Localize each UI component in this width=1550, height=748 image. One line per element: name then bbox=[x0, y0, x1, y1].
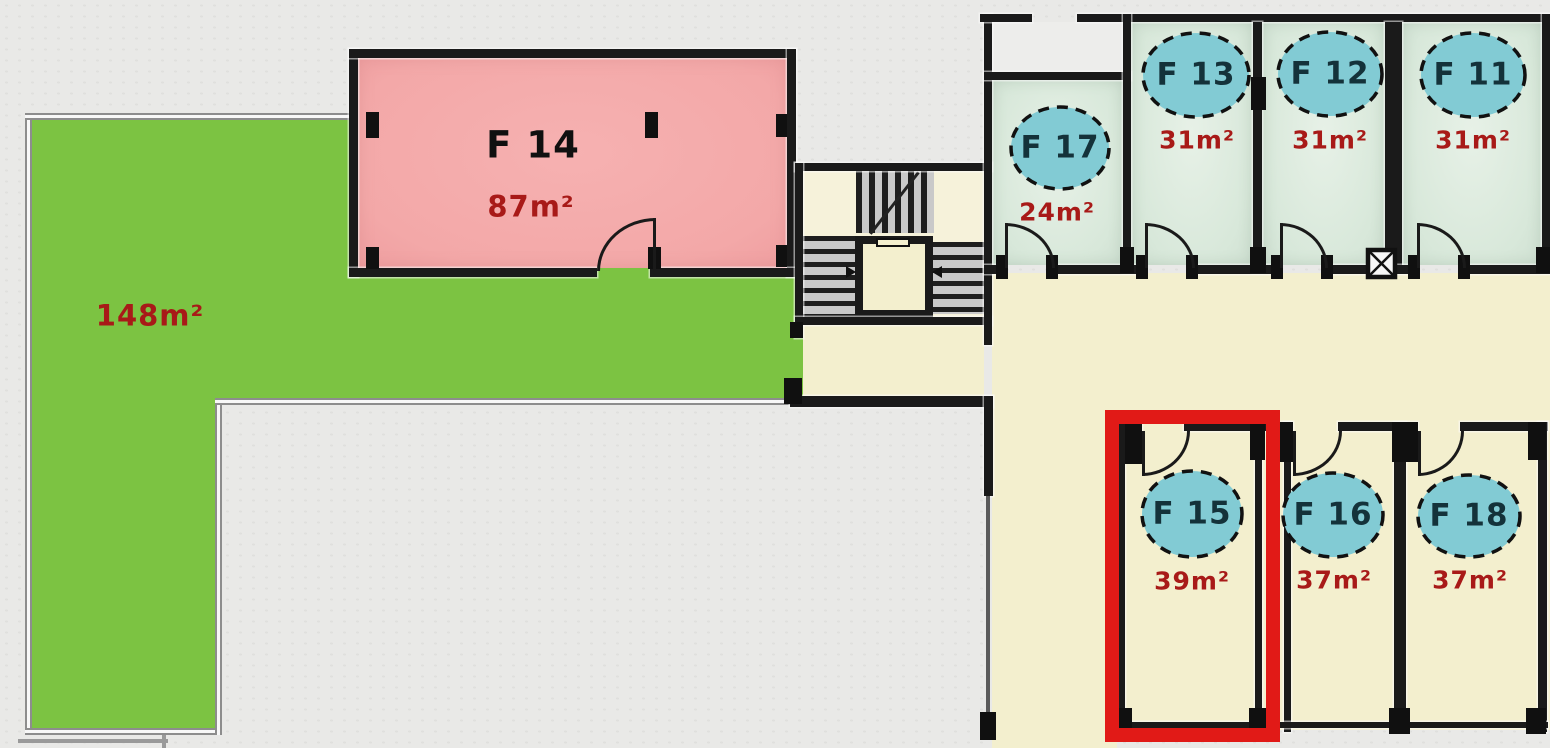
wall-post bbox=[1250, 247, 1266, 273]
wall-post bbox=[980, 712, 996, 740]
wall bbox=[795, 163, 803, 338]
wall bbox=[1538, 422, 1547, 732]
wall-post bbox=[776, 114, 787, 137]
wall-post bbox=[645, 112, 658, 138]
unit-f17-area: 24m² bbox=[1019, 200, 1095, 225]
terrace-border-inner-vertical bbox=[215, 398, 222, 735]
wall-post bbox=[776, 245, 787, 267]
elevator-door-marker bbox=[876, 238, 910, 247]
unit-f17-label: F 17 bbox=[1020, 133, 1099, 164]
wall-post bbox=[366, 247, 379, 269]
corridor-left-band bbox=[803, 325, 984, 396]
vestibule bbox=[992, 22, 1123, 72]
wall bbox=[984, 72, 1131, 80]
stairs-right-flight bbox=[933, 242, 984, 314]
wall-post bbox=[366, 112, 379, 138]
unit-f13-label: F 13 bbox=[1156, 60, 1235, 91]
terrace-border-top bbox=[25, 113, 355, 120]
wall bbox=[1323, 265, 1417, 274]
terrace-foot-line bbox=[18, 739, 168, 743]
unit-f12-label: F 12 bbox=[1290, 59, 1369, 90]
wall bbox=[790, 396, 993, 407]
corridor-column bbox=[992, 273, 1117, 748]
wall-post bbox=[784, 378, 802, 404]
unit-f15-area: 39m² bbox=[1154, 569, 1230, 594]
wall bbox=[1123, 14, 1131, 273]
wall-post bbox=[1120, 247, 1134, 273]
unit-f11-label: F 11 bbox=[1433, 60, 1512, 91]
unit-f14-area: 87m² bbox=[487, 193, 574, 222]
unit-f15-label: F 15 bbox=[1152, 499, 1231, 530]
terrace-border-inner-horizontal bbox=[215, 398, 795, 405]
unit-f16-area: 37m² bbox=[1296, 568, 1372, 593]
unit-f13-area: 31m² bbox=[1159, 128, 1235, 153]
wall bbox=[349, 49, 796, 58]
wall bbox=[984, 14, 992, 345]
wall bbox=[984, 396, 993, 496]
stairs-left-flight bbox=[803, 236, 856, 317]
wall bbox=[349, 49, 358, 277]
wall bbox=[1077, 14, 1550, 22]
unit-f11-area: 31m² bbox=[1435, 128, 1511, 153]
wall bbox=[795, 163, 992, 171]
wall bbox=[795, 317, 992, 325]
wall bbox=[650, 268, 796, 277]
terrace-area-strip[interactable] bbox=[30, 398, 215, 728]
unit-f16-label: F 16 bbox=[1293, 500, 1372, 531]
terrace-border-strip-bottom bbox=[25, 728, 222, 735]
wall bbox=[1190, 265, 1280, 274]
unit-f18-area: 37m² bbox=[1432, 568, 1508, 593]
wall bbox=[1284, 422, 1291, 732]
wall bbox=[1385, 22, 1402, 273]
wall bbox=[1394, 422, 1406, 732]
wall bbox=[349, 268, 597, 277]
unit-f14-label: F 14 bbox=[486, 127, 580, 164]
terrace-area-label: 148m² bbox=[96, 302, 204, 331]
wall bbox=[980, 14, 1032, 22]
wall-post bbox=[1251, 77, 1266, 110]
terrace-border-left bbox=[25, 113, 32, 735]
terrace-foot-line-vertical bbox=[162, 735, 166, 748]
floor-plan-canvas: F 14 87m² 148m² F 17 24m² F 13 31m² F 12… bbox=[0, 0, 1550, 748]
unit-f18-label: F 18 bbox=[1429, 501, 1508, 532]
unit-f12-area: 31m² bbox=[1292, 128, 1368, 153]
wall-post bbox=[790, 322, 803, 338]
wall bbox=[1542, 14, 1550, 273]
wall-post bbox=[1536, 247, 1550, 273]
wall bbox=[986, 496, 990, 716]
wall bbox=[1253, 22, 1262, 273]
elevator bbox=[855, 236, 933, 318]
